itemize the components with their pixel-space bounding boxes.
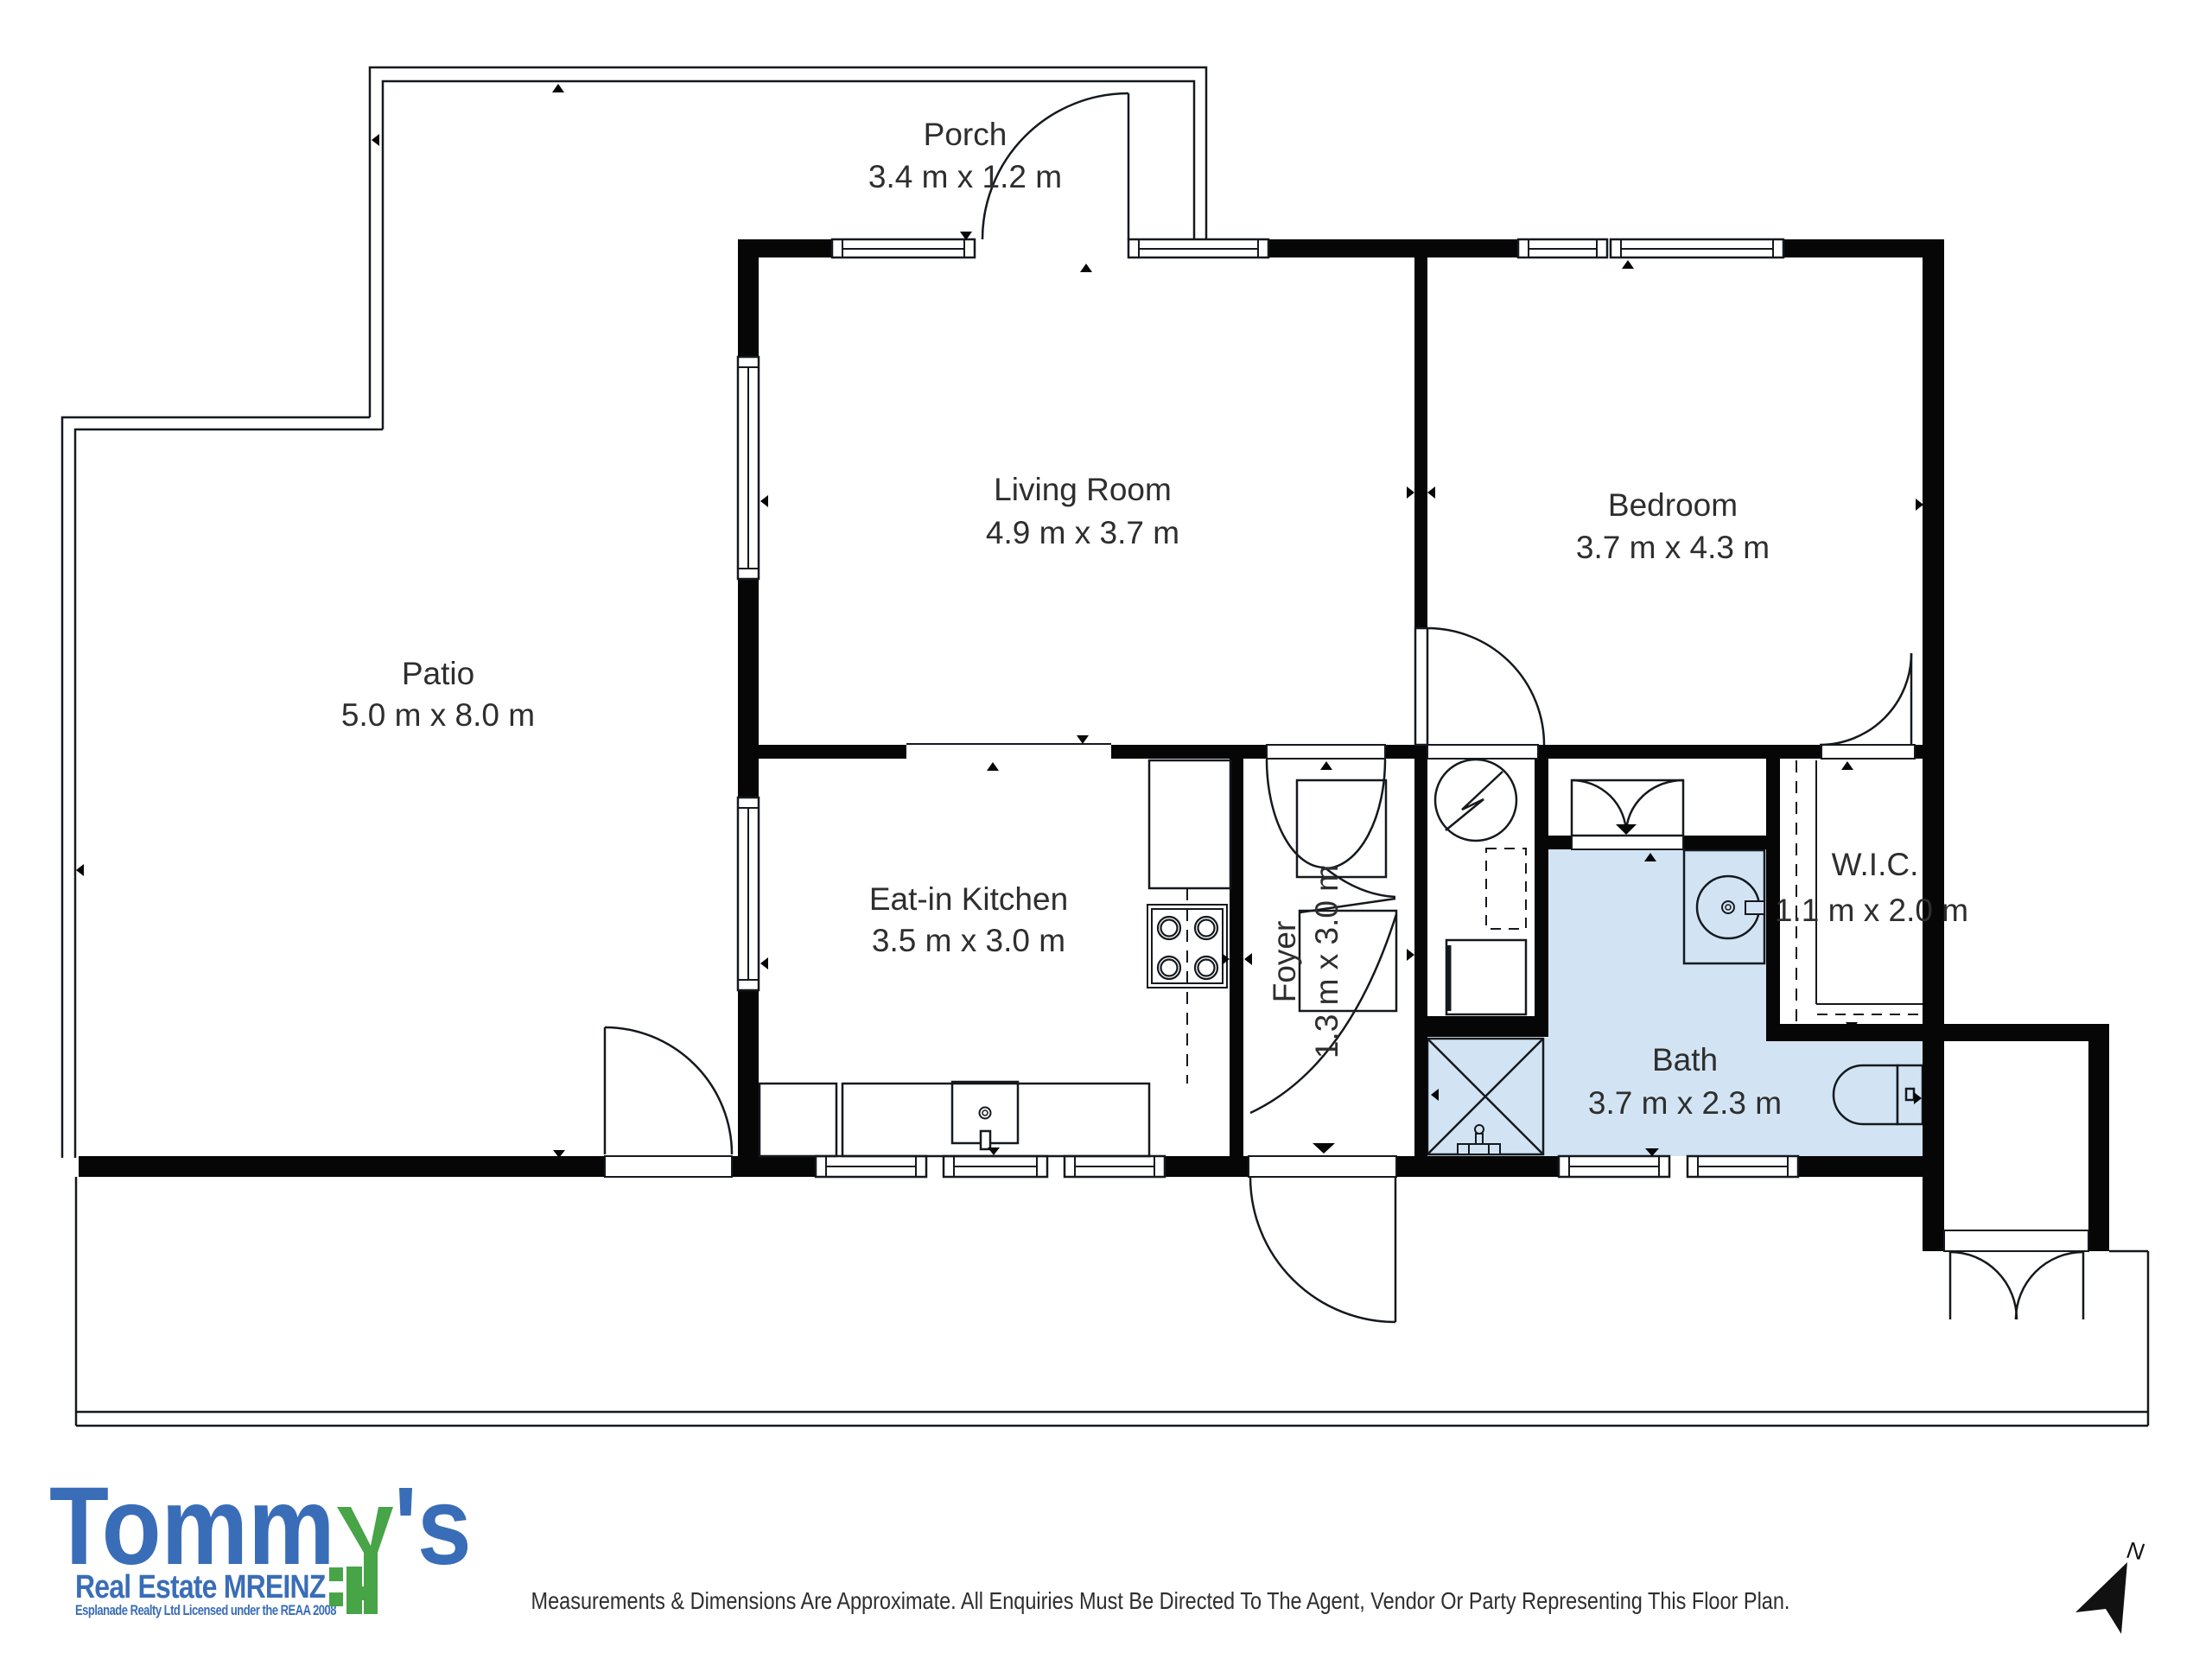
svg-text:Porch: Porch bbox=[924, 117, 1007, 152]
svg-text:Esplanade Realty Ltd Licensed: Esplanade Realty Ltd Licensed under the … bbox=[75, 1602, 336, 1618]
svg-text:1.1 m x 2.0 m: 1.1 m x 2.0 m bbox=[1775, 893, 1968, 928]
svg-text:Patio: Patio bbox=[402, 656, 474, 691]
svg-text:1.3 m x 3.0 m: 1.3 m x 3.0 m bbox=[1309, 865, 1344, 1058]
svg-text:'s: 's bbox=[394, 1465, 472, 1588]
svg-text:3.7 m x 2.3 m: 3.7 m x 2.3 m bbox=[1588, 1085, 1782, 1121]
svg-text:Bath: Bath bbox=[1652, 1042, 1718, 1077]
svg-text:3.4 m x 1.2 m: 3.4 m x 1.2 m bbox=[868, 159, 1062, 194]
svg-text:Bedroom: Bedroom bbox=[1608, 487, 1738, 523]
svg-text:Foyer: Foyer bbox=[1267, 921, 1302, 1003]
svg-text:3.7 m x 4.3 m: 3.7 m x 4.3 m bbox=[1576, 530, 1770, 565]
svg-text:Eat-in Kitchen: Eat-in Kitchen bbox=[869, 881, 1068, 917]
svg-text:Living Room: Living Room bbox=[994, 472, 1172, 507]
svg-text:4.9 m x 3.7 m: 4.9 m x 3.7 m bbox=[986, 515, 1179, 550]
svg-text:W.I.C.: W.I.C. bbox=[1832, 847, 1919, 882]
svg-text:Measurements & Dimensions Are: Measurements & Dimensions Are Approximat… bbox=[531, 1588, 1790, 1614]
svg-text:Real Estate MREINZ: Real Estate MREINZ bbox=[75, 1568, 326, 1605]
svg-text:3.5 m x 3.0 m: 3.5 m x 3.0 m bbox=[872, 923, 1065, 958]
svg-text:5.0 m x 8.0 m: 5.0 m x 8.0 m bbox=[341, 697, 535, 733]
